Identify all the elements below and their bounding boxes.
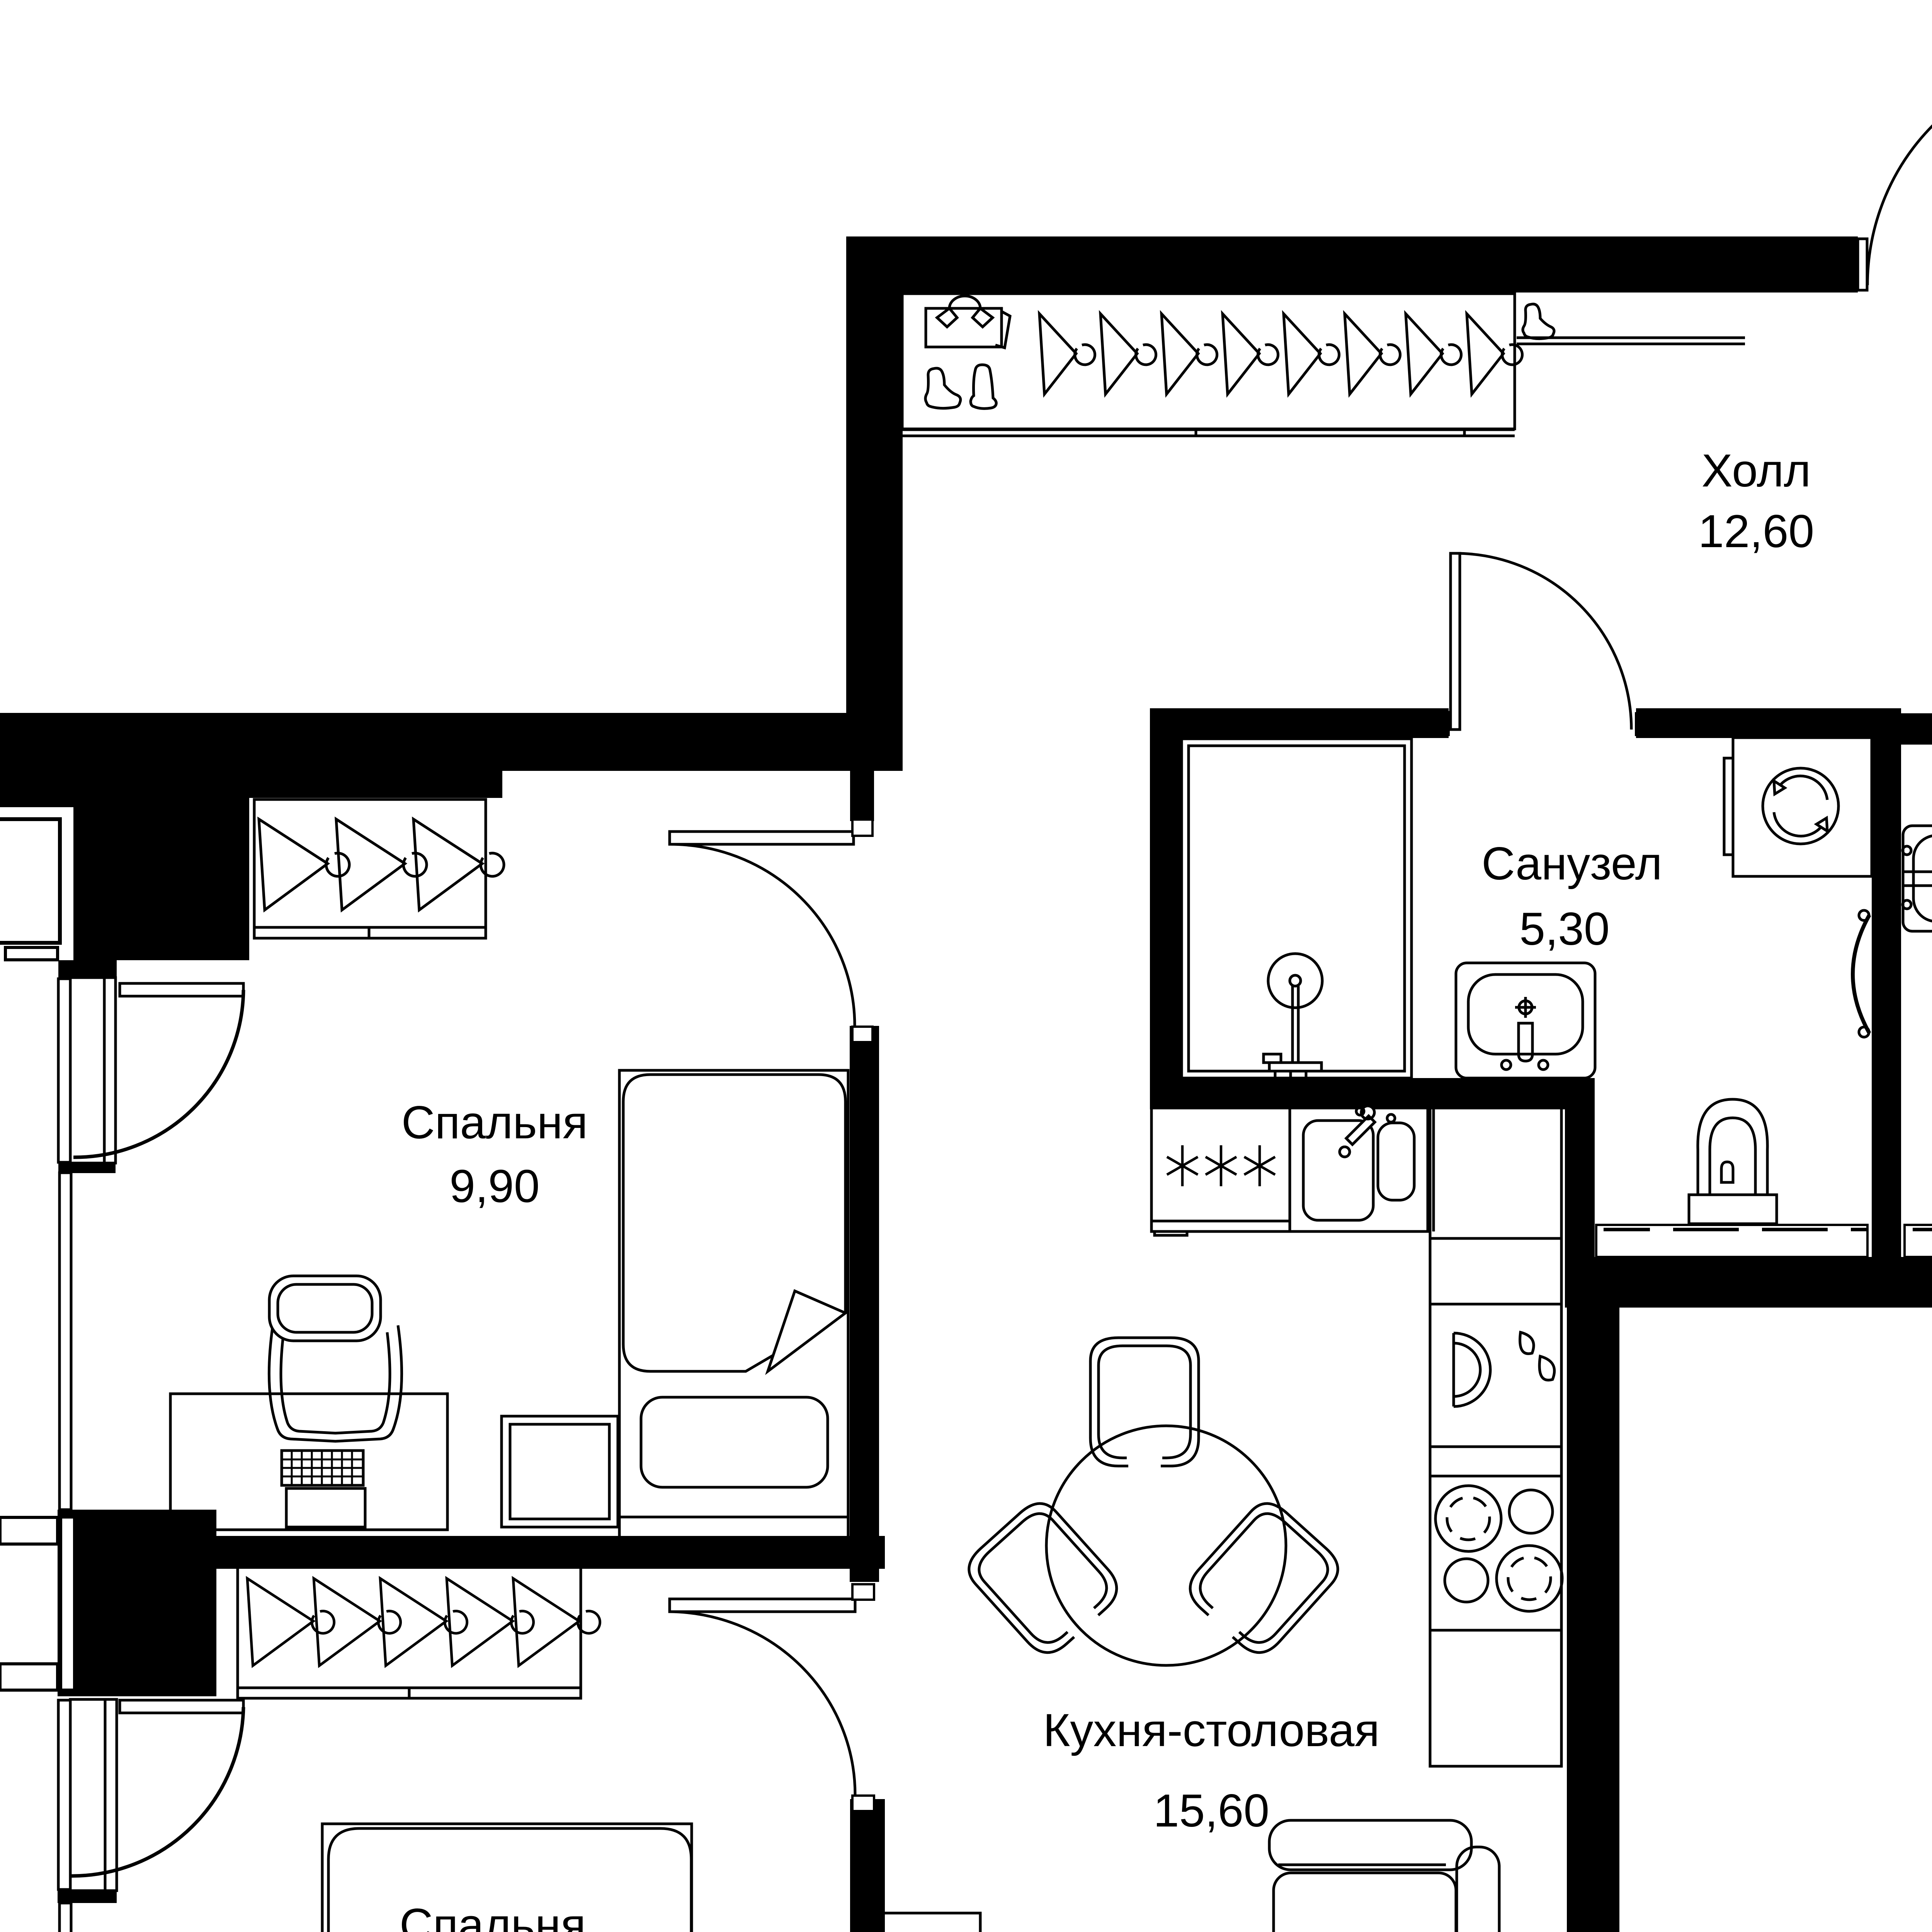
svg-text:Спальня: Спальня: [401, 1097, 588, 1148]
svg-text:Санузел: Санузел: [1481, 838, 1662, 889]
svg-text:Холл: Холл: [1702, 445, 1811, 497]
svg-text:9,90: 9,90: [449, 1160, 540, 1212]
svg-text:5,30: 5,30: [1519, 903, 1610, 955]
svg-text:15,60: 15,60: [1153, 1785, 1269, 1837]
svg-text:12,60: 12,60: [1698, 505, 1814, 557]
svg-text:Кухня-столовая: Кухня-столовая: [1043, 1704, 1379, 1756]
svg-text:Спальня: Спальня: [400, 1899, 586, 1932]
